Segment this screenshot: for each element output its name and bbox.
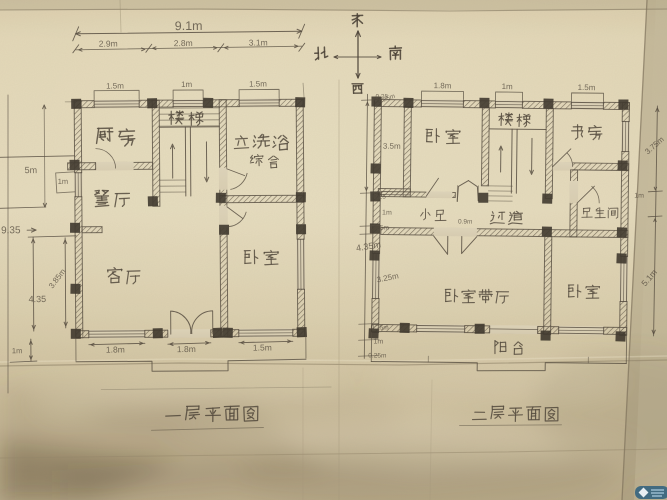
svg-text:1m: 1m: [12, 346, 22, 355]
svg-text:0.9m: 0.9m: [458, 218, 473, 225]
svg-text:9.1m: 9.1m: [175, 19, 203, 33]
svg-text:1m: 1m: [634, 193, 644, 200]
svg-text:5m: 5m: [25, 165, 38, 175]
svg-text:1m: 1m: [382, 210, 392, 217]
svg-text:1m: 1m: [58, 177, 68, 186]
svg-text:1m: 1m: [502, 82, 514, 91]
svg-text:1.5m: 1.5m: [249, 79, 267, 88]
svg-text:0.25: 0.25: [375, 93, 388, 100]
svg-text:9.35: 9.35: [1, 225, 21, 236]
svg-text:1.8m: 1.8m: [434, 81, 452, 90]
svg-text:2.9m: 2.9m: [99, 39, 118, 49]
svg-text:0.25m: 0.25m: [368, 352, 386, 359]
svg-text:2.8m: 2.8m: [174, 38, 193, 48]
svg-text:1.8m: 1.8m: [177, 344, 196, 354]
svg-text:0.25m: 0.25m: [371, 324, 389, 331]
svg-text:1.5m: 1.5m: [253, 342, 272, 352]
svg-text:1.5m: 1.5m: [578, 83, 596, 92]
svg-text:4.35: 4.35: [29, 294, 47, 304]
svg-text:0.25m: 0.25m: [371, 224, 389, 231]
svg-text:3.1m: 3.1m: [249, 37, 268, 47]
svg-text:1m: 1m: [373, 338, 383, 345]
svg-text:0.25: 0.25: [373, 193, 386, 200]
svg-text:1.5m: 1.5m: [106, 81, 124, 90]
svg-text:3.5m: 3.5m: [383, 142, 401, 151]
svg-text:1.8m: 1.8m: [106, 344, 125, 354]
svg-text:1m: 1m: [181, 80, 193, 89]
